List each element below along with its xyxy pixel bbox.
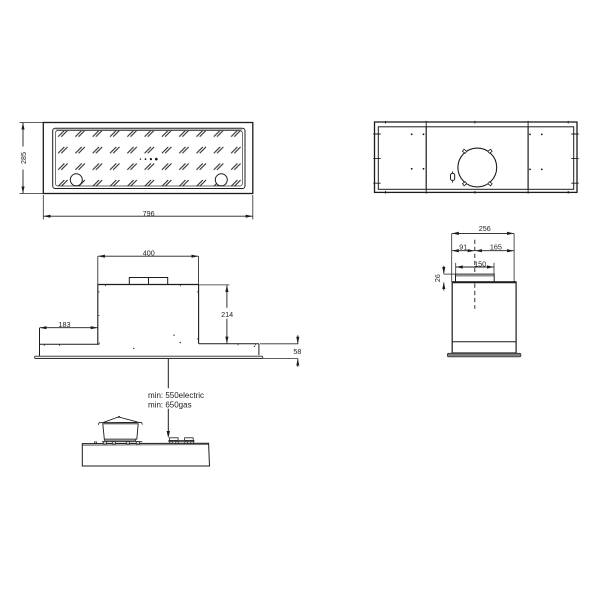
svg-text:min: 550electric: min: 550electric <box>148 391 204 400</box>
svg-text:256: 256 <box>479 224 491 233</box>
svg-text:796: 796 <box>143 209 155 218</box>
svg-text:91: 91 <box>459 242 467 251</box>
svg-text:285: 285 <box>19 152 28 164</box>
svg-text:400: 400 <box>143 248 155 257</box>
svg-text:58: 58 <box>293 347 301 356</box>
svg-text:165: 165 <box>490 242 502 251</box>
svg-text:183: 183 <box>59 320 71 329</box>
svg-text:150: 150 <box>474 259 486 268</box>
svg-text:min: 650gas: min: 650gas <box>148 401 192 410</box>
svg-text:26: 26 <box>433 274 442 282</box>
svg-text:214: 214 <box>221 310 233 319</box>
